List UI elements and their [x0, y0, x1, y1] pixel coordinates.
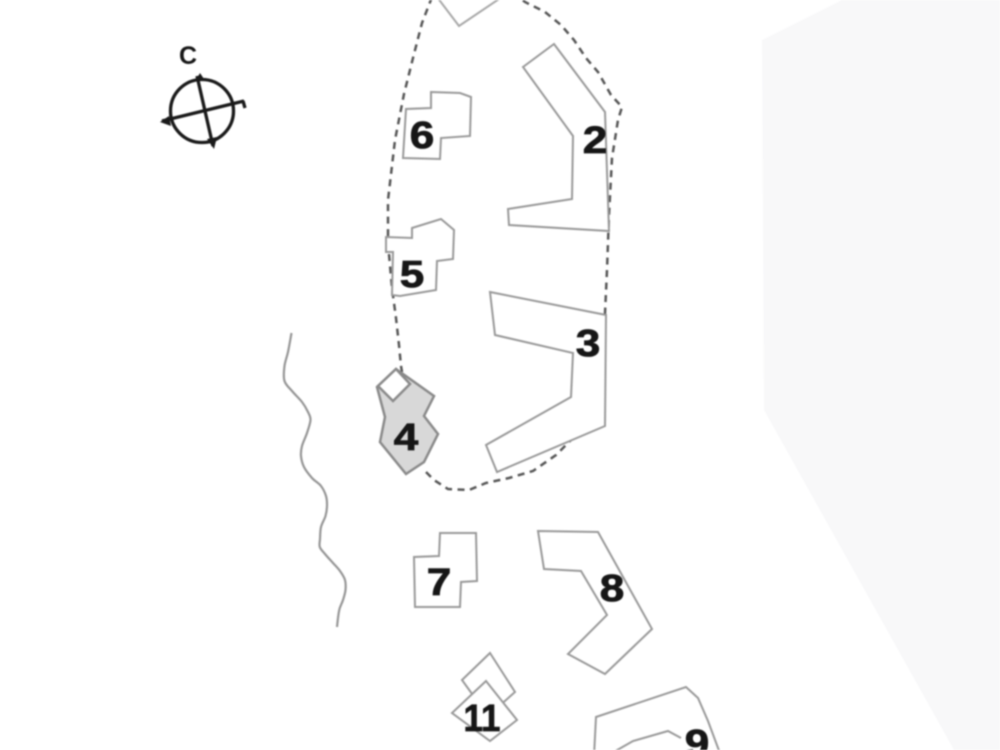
svg-text:6: 6: [410, 114, 435, 156]
svg-text:7: 7: [427, 561, 452, 603]
svg-text:9: 9: [685, 722, 710, 750]
svg-text:8: 8: [600, 567, 625, 609]
svg-text:2: 2: [583, 119, 608, 161]
svg-text:C: C: [179, 42, 197, 70]
svg-text:4: 4: [394, 416, 419, 458]
svg-text:3: 3: [576, 322, 601, 364]
svg-text:5: 5: [400, 253, 425, 295]
svg-text:11: 11: [464, 697, 501, 740]
